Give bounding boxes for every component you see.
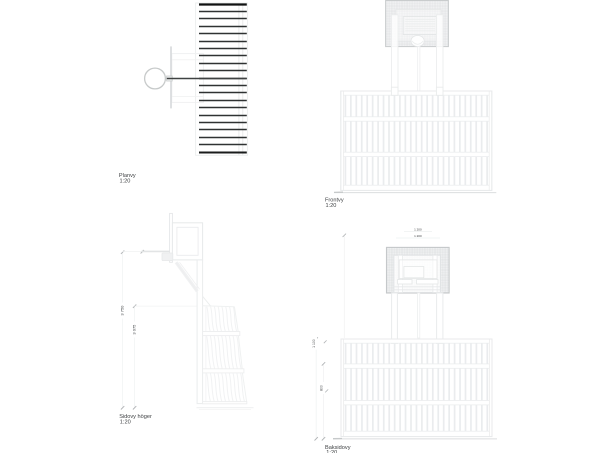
svg-text:1:20: 1:20: [120, 420, 131, 426]
svg-text:1 100: 1 100: [312, 339, 316, 348]
svg-text:1:20: 1:20: [120, 179, 131, 185]
svg-text:3 075: 3 075: [131, 324, 136, 335]
svg-text:800: 800: [319, 385, 323, 391]
svg-text:3 750: 3 750: [119, 305, 124, 316]
svg-text:1 200: 1 200: [414, 234, 422, 238]
svg-text:1 200: 1 200: [414, 228, 422, 232]
svg-text:1:20: 1:20: [326, 203, 337, 209]
